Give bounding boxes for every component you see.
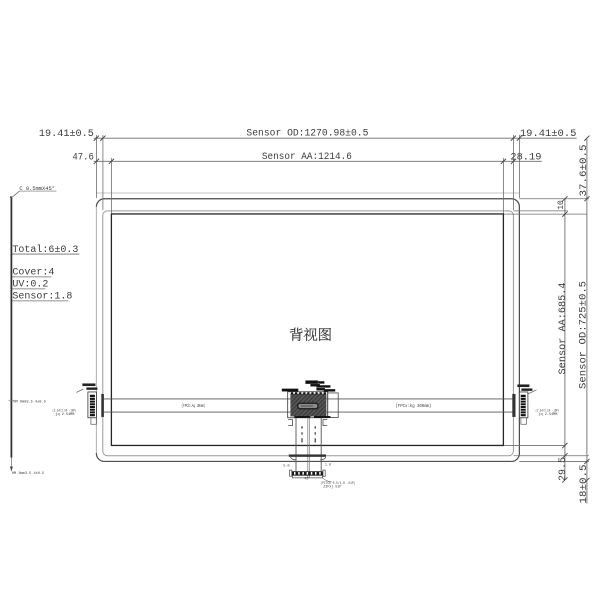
svg-text:Sensor AA:685.4: Sensor AA:685.4 [558, 282, 569, 374]
svg-text:(FPCx:kg 300mm): (FPCx:kg 300mm) [395, 404, 431, 409]
svg-text:jq 2.54MM: jq 2.54MM [55, 412, 74, 417]
svg-text:Sensor AA:1214.6: Sensor AA:1214.6 [262, 152, 352, 163]
svg-text:19.41±0.5: 19.41±0.5 [39, 129, 94, 140]
svg-text:ZIFxj 51P: ZIFxj 51P [323, 485, 341, 490]
svg-text:1.0: 1.0 [325, 463, 331, 467]
svg-text:28.19: 28.19 [510, 153, 541, 164]
svg-text:(FPCk:Aq 30mm): (FPCk:Aq 30mm) [181, 404, 205, 409]
svg-text:19.41±0.5: 19.41±0.5 [520, 129, 577, 140]
svg-text:0M 9mm3.5 4±0.5: 0M 9mm3.5 4±0.5 [13, 400, 45, 404]
svg-text:37.6±0.5: 37.6±0.5 [579, 144, 590, 196]
svg-text:jq 2.54MM: jq 2.54MM [538, 412, 557, 417]
svg-text:Sensor OD:1270.98±0.5: Sensor OD:1270.98±0.5 [246, 129, 368, 140]
svg-text:29.5: 29.5 [558, 457, 569, 481]
svg-text:Sensor OD:725±0.5: Sensor OD:725±0.5 [578, 281, 589, 389]
svg-text:47.6: 47.6 [72, 152, 94, 163]
svg-text:5.0: 5.0 [283, 464, 289, 468]
svg-text:43: 43 [304, 477, 308, 481]
svg-text:10: 10 [557, 200, 566, 210]
svg-text:0M 3mm3.5 4±0.5: 0M 3mm3.5 4±0.5 [12, 472, 44, 476]
svg-text:18±0.5: 18±0.5 [579, 464, 590, 503]
